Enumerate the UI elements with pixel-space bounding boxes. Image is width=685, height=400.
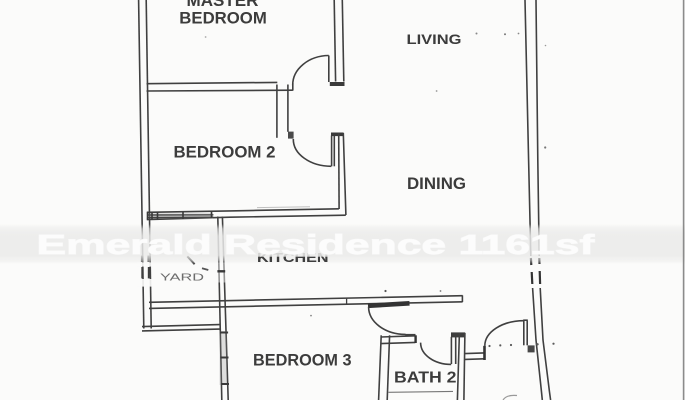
svg-text:BEDROOM 2: BEDROOM 2 bbox=[174, 143, 276, 161]
svg-text:Emerald Residence 1161sf: Emerald Residence 1161sf bbox=[37, 229, 596, 260]
svg-text:BEDROOM: BEDROOM bbox=[179, 9, 266, 28]
svg-text:YARD: YARD bbox=[160, 272, 205, 284]
svg-text:LIVING: LIVING bbox=[407, 31, 462, 47]
svg-text:DINING: DINING bbox=[407, 174, 466, 193]
svg-text:BATH 2: BATH 2 bbox=[394, 370, 457, 387]
svg-text:BEDROOM 3: BEDROOM 3 bbox=[253, 351, 352, 370]
